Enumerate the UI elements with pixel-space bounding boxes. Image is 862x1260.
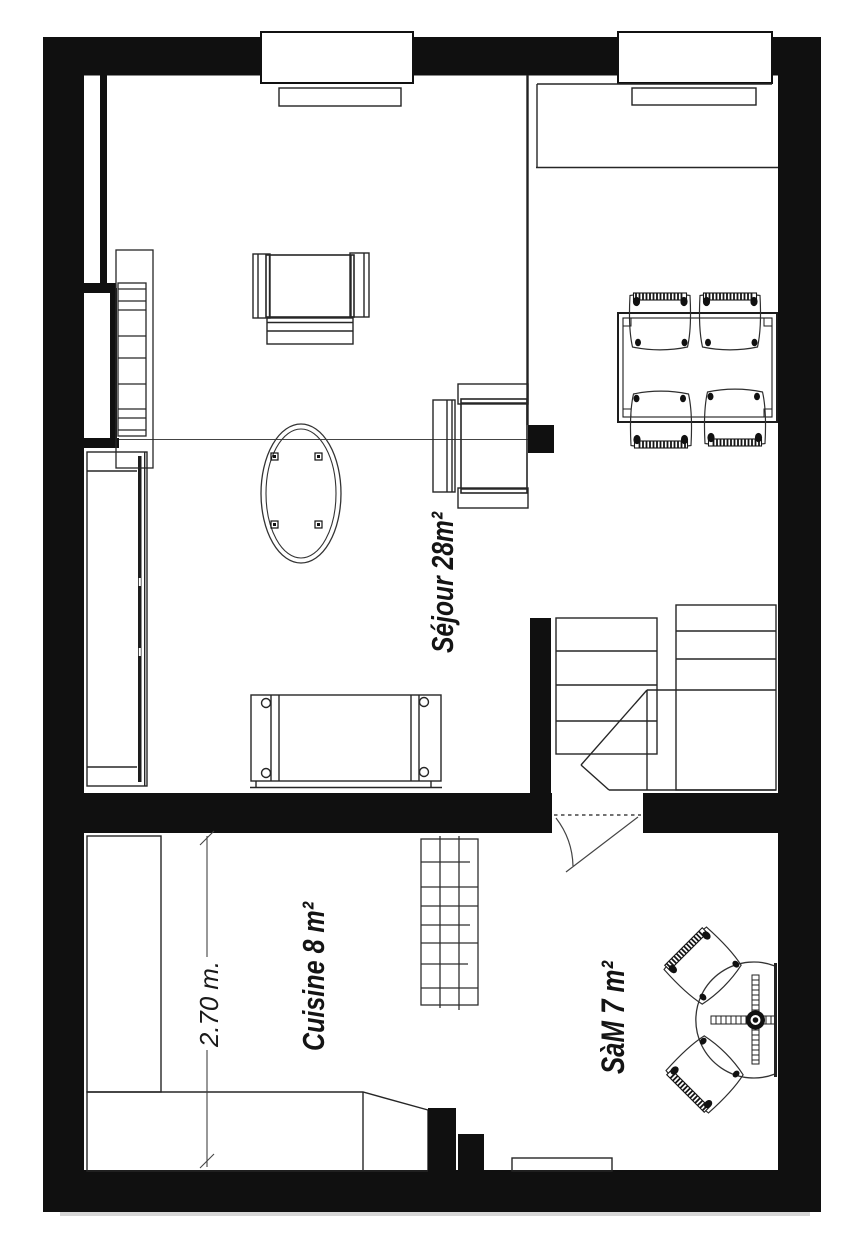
svg-text:SàM 7 m²: SàM 7 m² (595, 960, 631, 1074)
svg-text:Cuisine 8 m²: Cuisine 8 m² (296, 901, 331, 1051)
svg-text:Séjour 28m²: Séjour 28m² (425, 511, 460, 653)
svg-text:2.70 m.: 2.70 m. (194, 961, 224, 1048)
